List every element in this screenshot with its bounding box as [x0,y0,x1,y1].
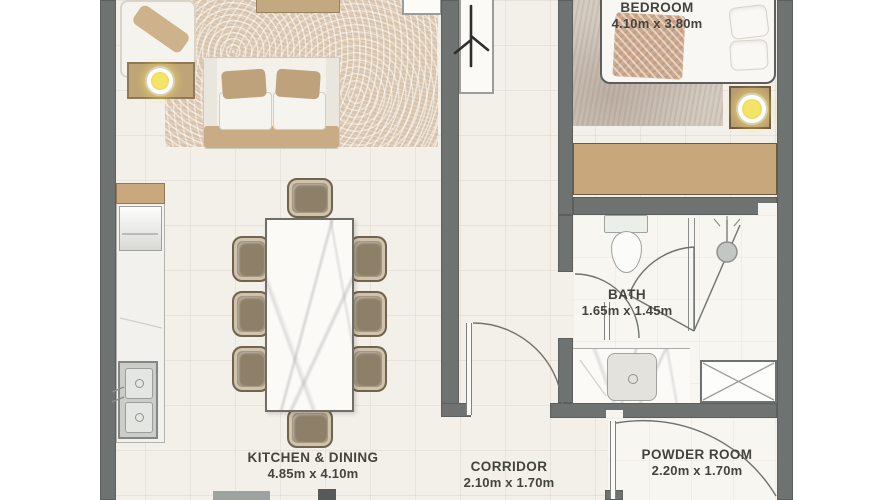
throw-pillow [275,68,321,99]
shower-partition [688,218,695,331]
bed-pillow [728,4,770,40]
dining-chair [349,291,387,337]
bath-wall-notch [758,203,777,215]
dining-chair [349,236,387,282]
room-dimensions: 2.10m x 1.70m [464,475,555,491]
armchair-throw [131,3,191,54]
right-outer-wall [777,0,793,500]
room-name: BATH [582,287,673,303]
floor-lamp-icon [145,66,175,96]
bath-left-wall-upper [558,215,573,272]
corridor-wall [441,0,459,405]
sink-basin [125,402,153,433]
room-label-kitchen-dining: KITCHEN & DINING 4.85m x 4.10m [248,450,379,482]
bottom-wall-stub-dark [318,489,336,500]
powder-door-frame [606,410,623,418]
room-name: CORRIDOR [464,459,555,475]
room-dimensions: 4.85m x 4.10m [248,466,379,482]
vanity-basin [607,353,657,401]
console-table [459,0,494,94]
oven-icon [119,206,162,251]
bath-top-wall [573,197,777,215]
bedroom-left-wall [558,0,573,215]
dining-table [265,218,354,412]
table-lamp-icon [736,93,768,125]
room-label-powder-room: POWDER ROOM 2.20m x 1.70m [642,447,753,479]
room-label-corridor: CORRIDOR 2.10m x 1.70m [464,459,555,491]
powder-door-leaf [610,421,616,499]
nightstand [729,86,771,129]
floor-plan: BEDROOM 4.10m x 3.80m BATH 1.65m x 1.45m… [0,0,890,500]
bath-left-wall-lower [558,338,573,403]
left-outer-wall [100,0,116,500]
dining-chair [287,178,333,218]
side-table [127,62,195,99]
coffee-table [256,0,340,13]
wall-shelf [402,0,442,15]
room-name: BEDROOM [612,0,703,16]
throw-pillow [221,68,267,99]
sink-basin [125,368,153,399]
corridor-door-leaf [466,323,472,415]
kitchen-sink [118,361,158,439]
room-dimensions: 2.20m x 1.70m [642,463,753,479]
kitchen-cabinet [116,183,165,204]
room-name: KITCHEN & DINING [248,450,379,466]
room-label-bath: BATH 1.65m x 1.45m [582,287,673,319]
room-dimensions: 4.10m x 3.80m [612,16,703,32]
room-label-bedroom: BEDROOM 4.10m x 3.80m [612,0,703,32]
room-dimensions: 1.65m x 1.45m [582,303,673,319]
bottom-wall-stub [213,491,270,500]
room-name: POWDER ROOM [642,447,753,463]
dining-chair [349,346,387,392]
sofa [203,57,340,149]
dining-chair [287,408,333,448]
bath-bottom-wall [550,403,777,418]
bed-pillow [729,39,769,71]
service-shaft [700,360,777,403]
bath-vanity [573,348,690,404]
wardrobe [573,143,777,195]
